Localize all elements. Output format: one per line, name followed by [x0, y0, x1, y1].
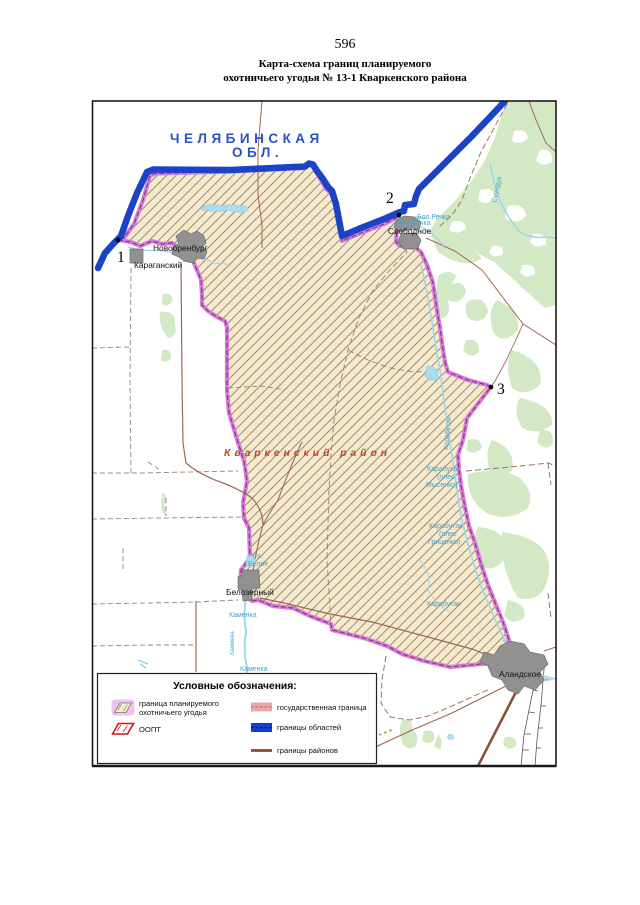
svg-text:3: 3	[497, 381, 505, 398]
svg-text:Кваркенский район: Кваркенский район	[224, 447, 391, 459]
svg-text:Условные обозначения:: Условные обозначения:	[173, 680, 296, 692]
svg-text:(плес: (плес	[437, 474, 455, 481]
svg-text:Карабутак: Карабутак	[429, 522, 463, 530]
svg-text:граница планируемого: граница планируемого	[139, 699, 219, 708]
svg-text:2: 2	[386, 190, 394, 207]
svg-text:Белое: Белое	[248, 561, 268, 568]
svg-text:Новооренбург: Новооренбург	[153, 243, 208, 253]
svg-text:охотничьего угодья: охотничьего угодья	[139, 708, 207, 717]
svg-text:Караганский: Караганский	[134, 260, 183, 270]
svg-text:границы областей: границы областей	[277, 723, 341, 732]
svg-text:государственная граница: государственная граница	[277, 703, 367, 712]
svg-text:ООПТ: ООПТ	[139, 725, 161, 734]
svg-text:ОБЛ.: ОБЛ.	[232, 145, 283, 160]
svg-text:Каменка: Каменка	[229, 612, 257, 619]
svg-text:Гриценко): Гриценко)	[428, 539, 460, 546]
svg-text:ЧЕЛЯБИНСКАЯ: ЧЕЛЯБИНСКАЯ	[170, 131, 324, 146]
svg-text:1: 1	[117, 249, 125, 266]
svg-text:Мысенко): Мысенко)	[426, 482, 458, 489]
svg-text:границы районов: границы районов	[277, 746, 338, 755]
svg-text:Каменка: Каменка	[230, 631, 236, 655]
svg-text:Карабутак: Карабутак	[427, 600, 461, 608]
svg-text:(плес: (плес	[439, 531, 457, 538]
svg-text:Свободное: Свободное	[388, 226, 432, 236]
svg-text:оз.: оз.	[253, 553, 262, 560]
svg-text:Каменка: Каменка	[240, 666, 268, 673]
svg-text:Карабутак: Карабутак	[427, 465, 461, 473]
svg-text:Мал.Речка: Мал.Речка	[396, 220, 431, 227]
svg-text:Белозерный: Белозерный	[226, 587, 274, 597]
svg-text:Аландское: Аландское	[499, 669, 541, 679]
